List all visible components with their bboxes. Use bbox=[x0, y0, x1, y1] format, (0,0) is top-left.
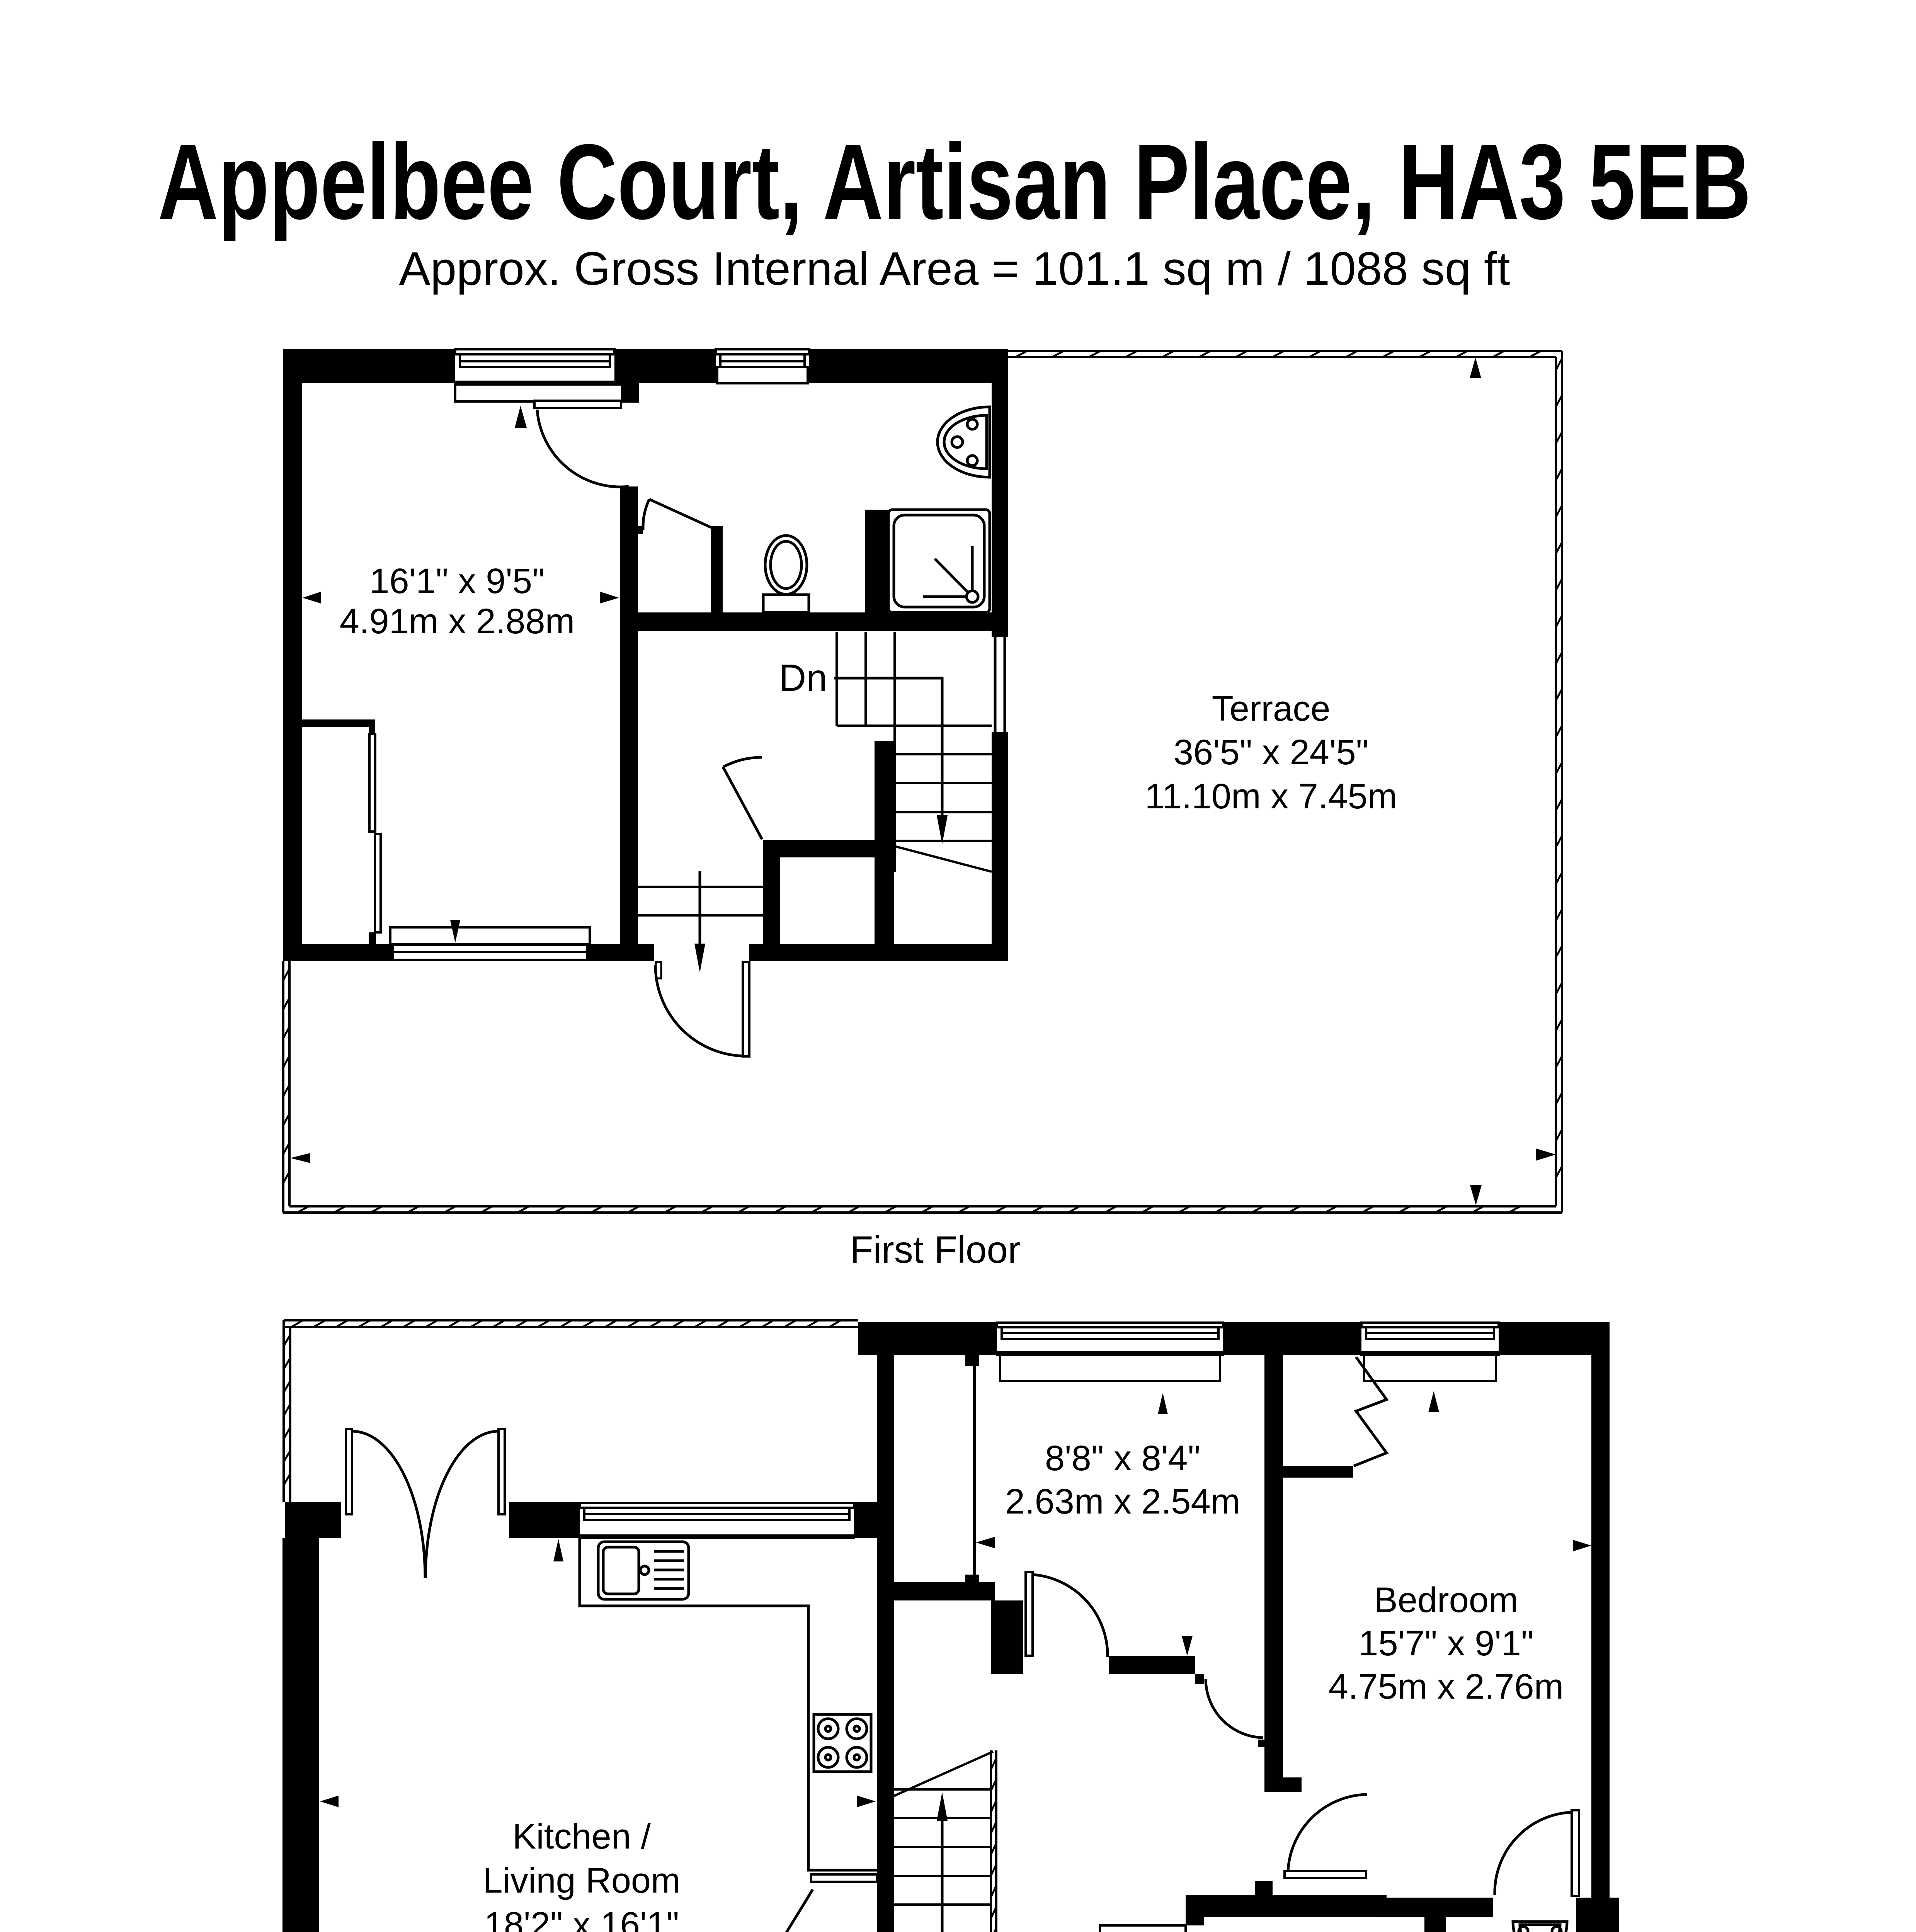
svg-text:11.10m x 7.45m: 11.10m x 7.45m bbox=[1145, 777, 1397, 816]
svg-text:4.75m x 2.76m: 4.75m x 2.76m bbox=[1329, 1667, 1564, 1706]
svg-text:Kitchen /: Kitchen / bbox=[512, 1817, 651, 1856]
svg-text:Living Room: Living Room bbox=[483, 1861, 680, 1900]
svg-text:36'5" x 24'5": 36'5" x 24'5" bbox=[1174, 733, 1369, 772]
svg-text:Terrace: Terrace bbox=[1212, 689, 1331, 728]
svg-text:4.91m x 2.88m: 4.91m x 2.88m bbox=[340, 602, 575, 641]
svg-text:Dn: Dn bbox=[779, 656, 827, 699]
svg-text:Bedroom: Bedroom bbox=[1374, 1580, 1518, 1620]
svg-text:Appelbee Court, Artisan Place,: Appelbee Court, Artisan Place, HA3 5EB bbox=[158, 122, 1751, 242]
svg-text:15'7" x 9'1": 15'7" x 9'1" bbox=[1358, 1624, 1533, 1663]
svg-text:Approx. Gross Internal Area =: Approx. Gross Internal Area = 101.1 sq m… bbox=[399, 242, 1510, 295]
svg-text:18'2" x 16'1": 18'2" x 16'1" bbox=[484, 1905, 679, 1932]
svg-text:First Floor: First Floor bbox=[850, 1228, 1021, 1271]
svg-text:8'8" x 8'4": 8'8" x 8'4" bbox=[1045, 1439, 1200, 1478]
svg-text:2.63m x 2.54m: 2.63m x 2.54m bbox=[1005, 1482, 1240, 1521]
svg-text:16'1" x 9'5": 16'1" x 9'5" bbox=[369, 561, 545, 601]
